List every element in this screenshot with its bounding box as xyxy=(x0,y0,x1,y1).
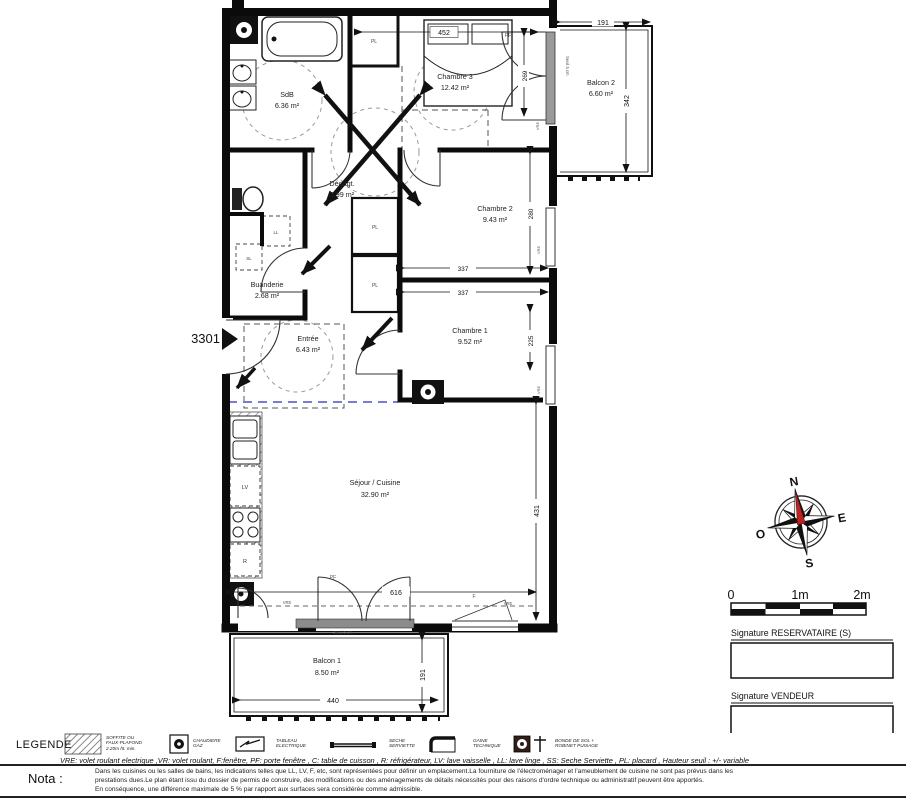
room-area: 9.43 m² xyxy=(483,215,508,224)
technical-duct-legend-icon xyxy=(428,735,458,754)
legend-item-seche: SECHE SERVIETTE xyxy=(389,738,415,749)
fridge-icon: R xyxy=(230,544,260,576)
compass-rose: N E S O xyxy=(747,467,854,578)
divider xyxy=(0,764,906,766)
room-name: Balcon 2 xyxy=(587,78,615,87)
scale-2m: 2m xyxy=(853,588,870,602)
compass-e: E xyxy=(837,510,847,525)
gas-boiler-legend-icon xyxy=(169,734,189,754)
unit-number-label: 3301 xyxy=(191,331,220,346)
electrical-panel-icon xyxy=(235,736,265,752)
dim-label: 191 xyxy=(597,20,609,27)
dimension-lines xyxy=(234,22,650,712)
room-area: 32.90 m² xyxy=(361,490,390,499)
nota-label: Nota : xyxy=(28,771,63,786)
compass-o: O xyxy=(755,527,767,542)
room-name: Chambre 1 xyxy=(452,326,488,335)
tag-pf: PF xyxy=(505,33,511,39)
tag-vre: VRE xyxy=(283,600,292,605)
room-area: 8.50 m² xyxy=(315,668,340,677)
towel-radiator-icon xyxy=(330,740,376,750)
room-area: 6.36 m² xyxy=(275,101,300,110)
tag-vre: VRE xyxy=(504,601,513,606)
room-area: 9.52 m² xyxy=(458,337,483,346)
tag-vre: VRE xyxy=(536,386,541,395)
gas-boiler-icon xyxy=(228,582,254,606)
nota-text: Dans les cuisines ou les salles de bains… xyxy=(95,767,895,794)
signature-reservataire-box xyxy=(731,643,893,678)
dim-label: 337 xyxy=(458,290,469,297)
room-area: 3.99 m² xyxy=(330,190,355,199)
right-wall-openings xyxy=(543,28,560,406)
dim-label: 191 xyxy=(420,669,427,681)
room-area: 6.43 m² xyxy=(296,345,321,354)
room-name: Dégagt. xyxy=(329,179,354,188)
dim-label: 225 xyxy=(528,335,535,346)
compass-s: S xyxy=(804,556,814,571)
floor-drain-legend-icon xyxy=(513,734,553,754)
tag-seuil: Seuil 5 cm xyxy=(565,56,570,76)
room-name: SdB xyxy=(280,90,294,99)
dim-label: 452 xyxy=(438,30,450,37)
room-name: Balcon 1 xyxy=(313,656,341,665)
room-name: Séjour / Cuisine xyxy=(350,478,401,487)
soffit-hatch-icon xyxy=(64,733,102,755)
dim-label: 280 xyxy=(528,208,535,219)
toilet-icon xyxy=(232,187,263,211)
closet-label: PL xyxy=(372,225,378,231)
closets xyxy=(350,14,398,312)
closet-label: PL xyxy=(372,283,378,289)
legend: LEGENDE SOFFITE OU FAUX-PLAFOND 2.20m ht… xyxy=(0,731,906,757)
signature-vendeur: Signature VENDEUR xyxy=(731,691,893,733)
scale-0: 0 xyxy=(728,588,735,602)
room-name: Chambre 2 xyxy=(477,204,513,213)
dim-label: 337 xyxy=(458,266,469,273)
washbasin-icons xyxy=(228,60,256,110)
kitchen-sink-icon xyxy=(230,416,260,464)
dishwasher-label: LV xyxy=(242,485,249,491)
tag-seuil: Seuil 5 cm xyxy=(333,630,353,635)
cooktop-icon xyxy=(230,508,260,542)
scale-bar: 0 1m 2m xyxy=(728,588,871,615)
legend-item-bonde: BONDE DE SOL + ROBINET PUISAGE xyxy=(555,738,598,749)
dryer-label: SL xyxy=(246,256,252,261)
divider xyxy=(0,796,906,798)
dimension-labels: 452 191 342 269 280 337 337 225 431 616 … xyxy=(320,17,631,706)
dim-label: 269 xyxy=(522,70,529,81)
legend-item-tableau: TABLEAU ELECTRIQUE xyxy=(276,738,306,749)
tag-vre: VRE xyxy=(536,246,541,255)
dim-label: 616 xyxy=(390,590,402,597)
room-area: 12.42 m² xyxy=(441,83,470,92)
dim-label: 342 xyxy=(624,95,631,107)
dim-label: 431 xyxy=(534,505,541,517)
floor-plan-page: LV R xyxy=(0,0,906,800)
dim-label: 440 xyxy=(327,698,339,705)
signature-vendeur-label: Signature VENDEUR xyxy=(731,691,814,701)
legend-item-chaudiere: CHAUDIERE GAZ xyxy=(193,738,221,749)
room-name: Entrée xyxy=(297,334,318,343)
bathroom-fixtures xyxy=(228,16,342,211)
tag-f: F xyxy=(472,594,475,600)
kitchen-area: LV R xyxy=(228,412,262,606)
fridge-label: R xyxy=(243,559,247,565)
floor-plan-drawing: LV R xyxy=(0,0,906,733)
room-area: 2.68 m² xyxy=(255,291,280,300)
room-name: Buanderie xyxy=(251,280,284,289)
signature-vendeur-box xyxy=(731,706,893,733)
dishwasher-icon: LV xyxy=(230,466,260,506)
compass-n: N xyxy=(788,474,799,489)
technical-duct-icon xyxy=(412,380,444,404)
scale-1m: 1m xyxy=(791,588,808,602)
legend-item-gaine: GAINE TECHNIQUE xyxy=(473,738,501,749)
floor-drain-icon xyxy=(230,16,258,44)
balcony-2 xyxy=(556,26,652,179)
legend-item-soffit: SOFFITE OU FAUX-PLAFOND 2.20m ht. min. xyxy=(106,735,142,751)
door-sill xyxy=(296,619,414,628)
room-name: Chambre 3 xyxy=(437,72,473,81)
tag-pf: PF xyxy=(330,575,336,581)
signature-reservataire-label: Signature RESERVATAIRE (S) xyxy=(731,628,851,638)
closet-label: PL xyxy=(371,39,377,45)
washer-label: LL xyxy=(273,230,279,235)
tag-vre: VRE xyxy=(535,122,540,131)
room-area: 6.60 m² xyxy=(589,89,614,98)
bathtub-icon xyxy=(262,17,342,61)
signature-reservataire: Signature RESERVATAIRE (S) xyxy=(731,628,893,678)
